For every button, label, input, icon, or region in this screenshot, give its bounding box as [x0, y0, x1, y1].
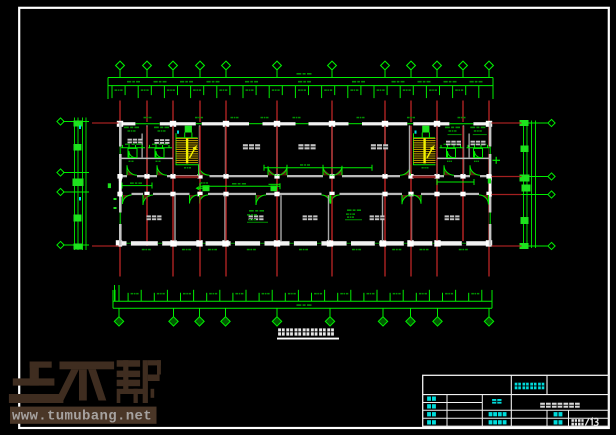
svg-text:www.tumubang.net: www.tumubang.net [12, 409, 152, 425]
